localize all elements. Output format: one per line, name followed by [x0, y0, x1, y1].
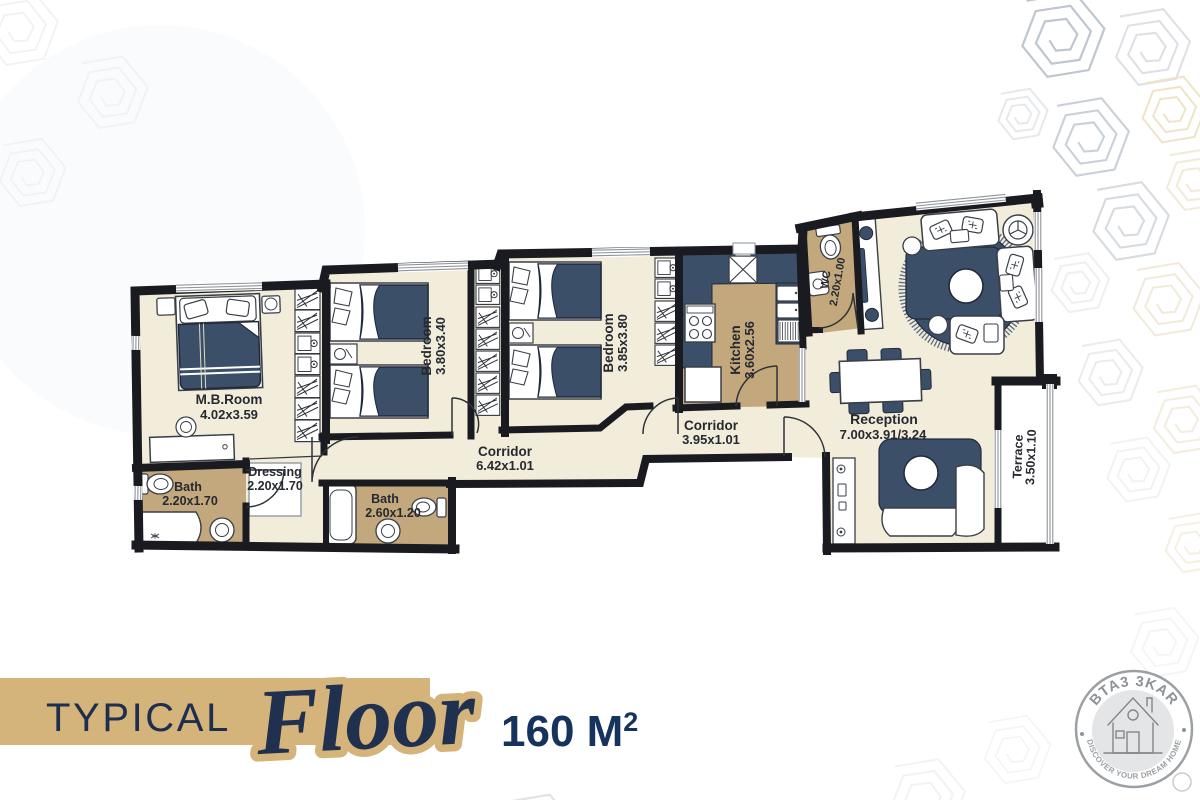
svg-text:7.00x3.91/3.24: 7.00x3.91/3.24	[840, 427, 928, 442]
svg-text:Floor: Floor	[252, 660, 479, 775]
svg-text:Corridor: Corridor	[684, 418, 739, 433]
svg-text:Bath: Bath	[371, 492, 399, 506]
svg-text:Reception: Reception	[850, 411, 918, 427]
svg-text:6.42x1.01: 6.42x1.01	[476, 458, 534, 473]
svg-text:Kitchen: Kitchen	[728, 325, 743, 375]
svg-text:160 M2: 160 M2	[501, 707, 638, 756]
svg-text:3.60x2.56: 3.60x2.56	[742, 321, 757, 379]
svg-text:M.B.Room: M.B.Room	[196, 392, 263, 407]
svg-text:3.95x1.01: 3.95x1.01	[682, 432, 740, 447]
svg-text:3.85x3.80: 3.85x3.80	[615, 314, 630, 372]
svg-text:Corridor: Corridor	[478, 444, 533, 459]
svg-text:4.02x3.59: 4.02x3.59	[200, 407, 258, 422]
svg-text:2.60x1.20: 2.60x1.20	[365, 506, 421, 520]
svg-text:2.20x1.70: 2.20x1.70	[162, 494, 218, 508]
svg-text:Bedroom: Bedroom	[601, 313, 616, 372]
svg-text:TYPICAL: TYPICAL	[46, 696, 231, 740]
svg-text:Bath: Bath	[174, 480, 202, 494]
svg-text:3.80x3.40: 3.80x3.40	[433, 317, 448, 375]
svg-text:Bedroom: Bedroom	[419, 316, 434, 375]
svg-text:Dressing: Dressing	[248, 465, 302, 479]
svg-text:2.20x1.70: 2.20x1.70	[247, 479, 303, 493]
svg-text:3.50x1.10: 3.50x1.10	[1023, 429, 1039, 485]
